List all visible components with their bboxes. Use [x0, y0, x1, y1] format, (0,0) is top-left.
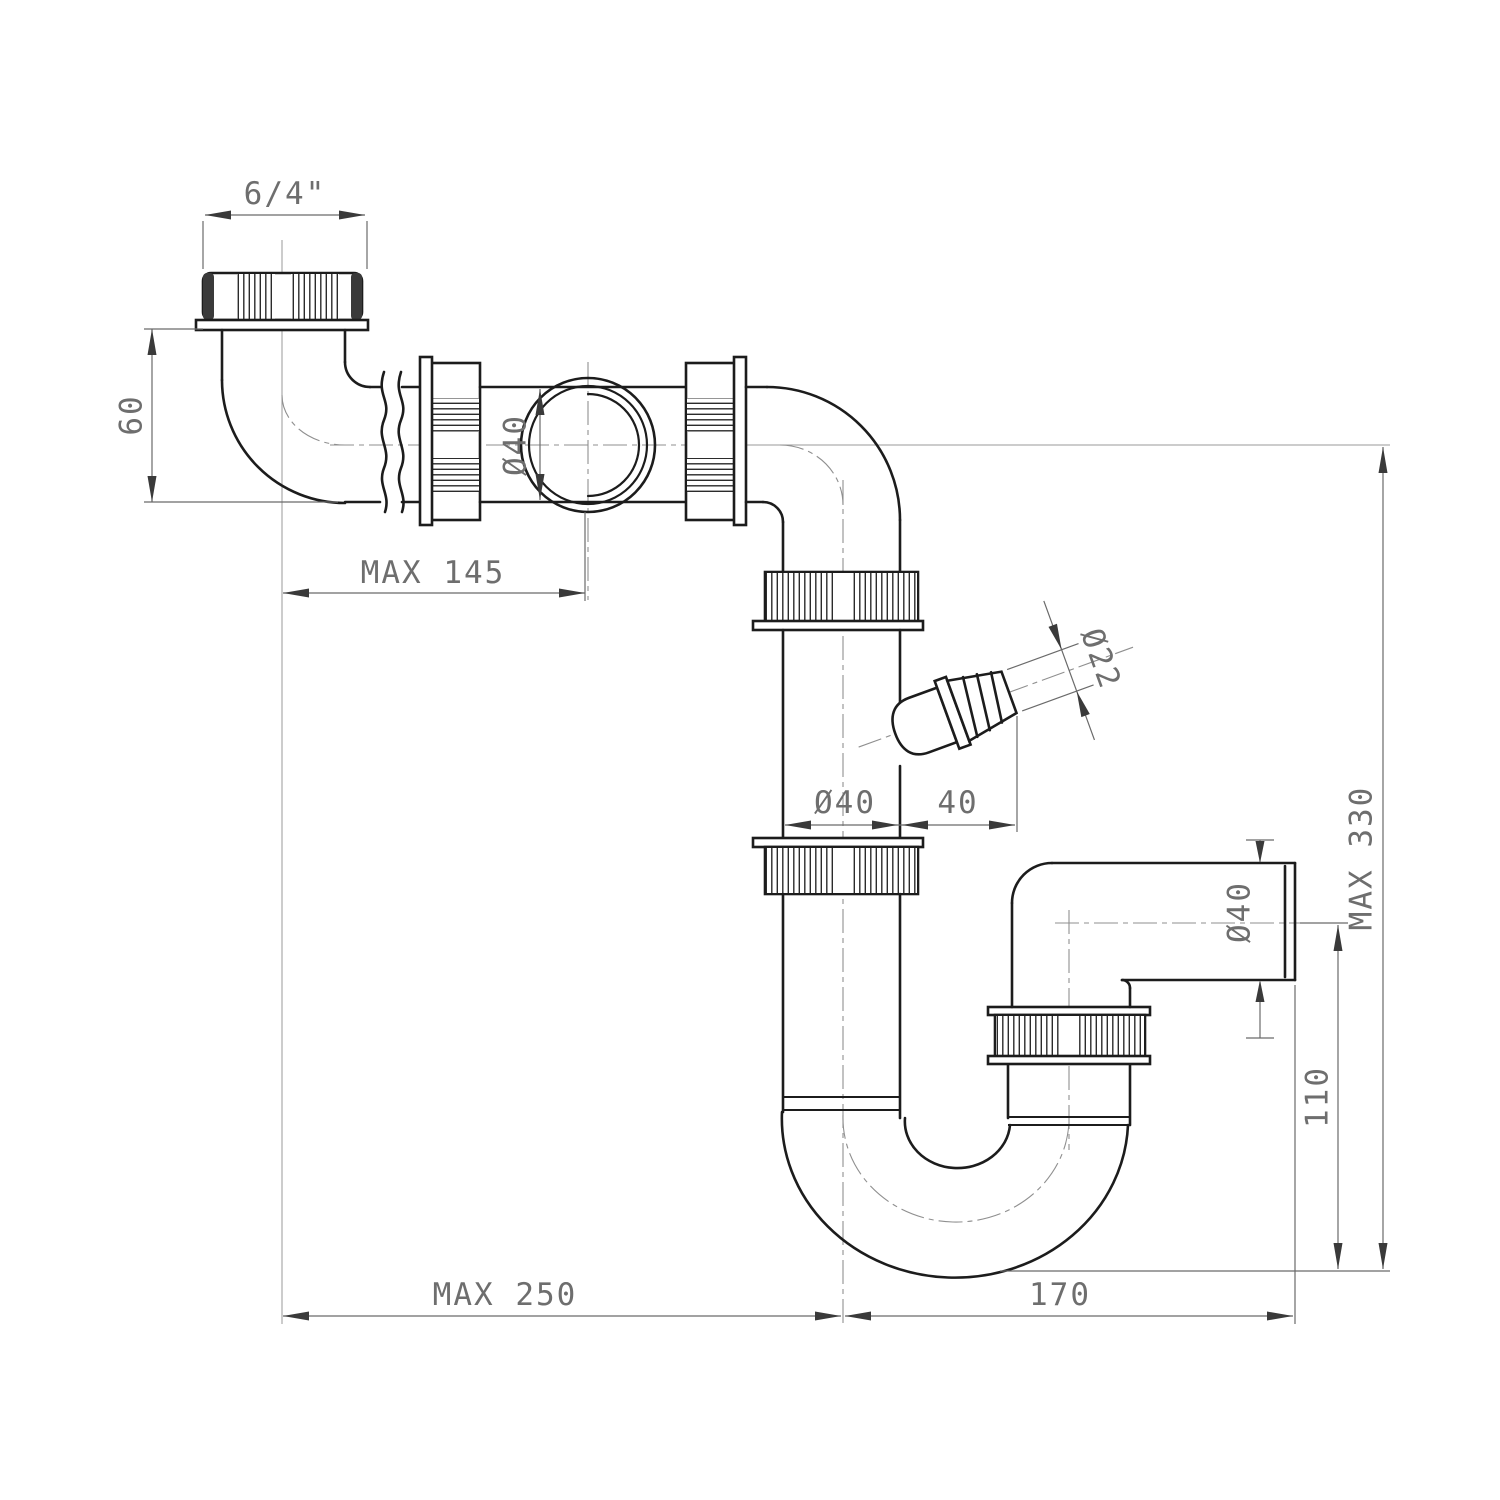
cap-nut-edge-left — [203, 273, 214, 320]
standpipe-nut-bottom-gap — [833, 848, 851, 893]
outlet-union-nut — [988, 1007, 1150, 1064]
standpipe-nut-top-flange — [753, 621, 923, 630]
union-right-flange — [734, 357, 746, 525]
union-nut-left — [420, 357, 480, 525]
background — [0, 0, 1500, 1500]
dim-label-trap-offset: 170 — [1029, 1277, 1091, 1313]
dim-label-pipe-bore: Ø40 — [498, 414, 534, 476]
union-left-flange — [420, 357, 432, 525]
union-left-body — [431, 363, 480, 520]
cap-nut-flange — [196, 320, 368, 330]
drawing-canvas: Ø22 — [0, 0, 1500, 1500]
standpipe-nut-top-gap — [833, 573, 851, 620]
union-right-thread-bottom — [687, 458, 734, 492]
dim-label-outlet-bore: Ø40 — [1222, 881, 1258, 943]
dim-label-inlet-drop: 60 — [114, 394, 150, 435]
union-right-body — [686, 363, 735, 520]
cap-nut-knurl-left — [237, 274, 275, 319]
dim-label-barb-offset: 40 — [937, 785, 978, 821]
dim-label-standpipe-bore: Ø40 — [814, 785, 876, 821]
inlet-cap-nut — [196, 273, 368, 330]
union-right-thread-top — [687, 398, 734, 432]
dim-label-horizontal-span: MAX 250 — [433, 1277, 578, 1313]
union-nut-right — [686, 357, 746, 525]
union-left-thread-bottom — [432, 458, 479, 492]
dim-label-outlet-drop: 110 — [1300, 1066, 1336, 1128]
dim-label-overall-height: MAX 330 — [1344, 786, 1380, 931]
cap-nut-edge-right — [351, 273, 362, 320]
outlet-nut-flange-bottom — [988, 1056, 1150, 1064]
cap-nut-knurl-right — [291, 274, 339, 319]
siphon-technical-drawing: Ø22 — [0, 0, 1500, 1500]
dim-label-horizontal-reach: MAX 145 — [361, 555, 506, 591]
outlet-nut-gap — [1060, 1016, 1078, 1055]
union-nut-bottom-standpipe — [753, 838, 923, 894]
standpipe-nut-bottom-flange — [753, 838, 923, 847]
union-nut-top-standpipe — [753, 572, 923, 630]
dim-label-thread-size: 6/4" — [244, 176, 327, 212]
union-left-thread-top — [432, 398, 479, 432]
